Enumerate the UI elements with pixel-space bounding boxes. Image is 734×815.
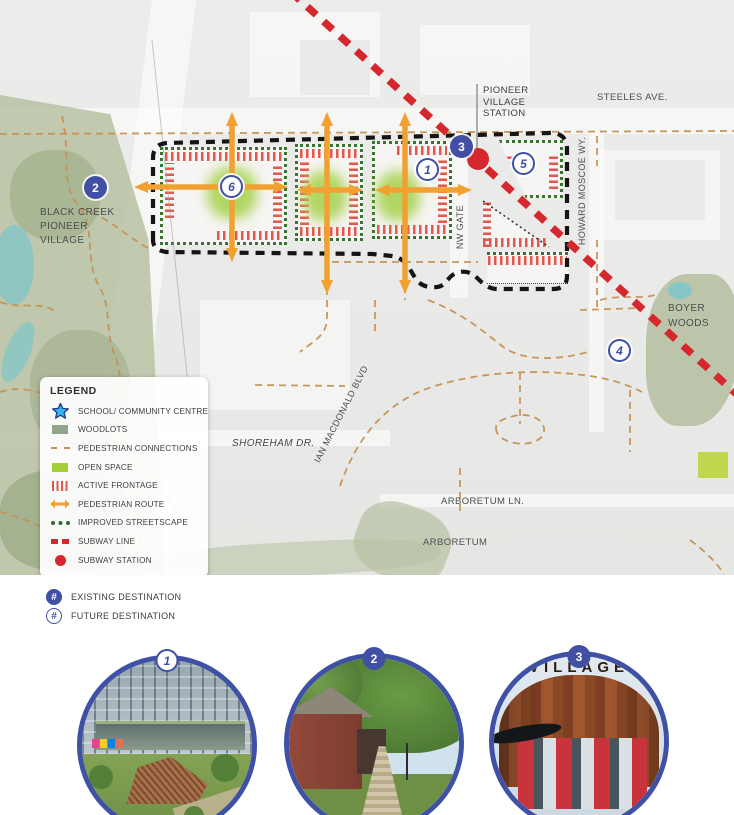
label-howard-moscoe: HOWARD MOSCOE WY. <box>577 136 587 246</box>
future-destination-label: FUTURE DESTINATION <box>71 611 175 621</box>
aerial-building <box>615 160 705 220</box>
map-marker-1: 1 <box>416 158 439 181</box>
striped-swatch <box>50 481 70 491</box>
active-frontage <box>438 157 447 223</box>
active-frontage <box>488 256 567 265</box>
photo-3-wrap: VILLAGE 3 <box>489 651 669 815</box>
label-nw-gate: NW GATE <box>455 197 465 257</box>
legend-title: LEGEND <box>50 385 198 397</box>
map-marker-6: 6 <box>220 175 243 198</box>
existing-destination-key: # EXISTING DESTINATION <box>46 589 181 605</box>
subway-dash-icon <box>50 539 70 544</box>
photo-2-lamp-post <box>406 743 408 780</box>
photo-1-image <box>77 655 257 815</box>
arboretum-road <box>380 494 734 507</box>
future-destination-icon: # <box>46 608 62 624</box>
active-frontage <box>217 231 282 240</box>
photo-2-cabin <box>289 714 362 789</box>
label-arboretum: ARBORETUM <box>423 537 487 548</box>
legend-label: OPEN SPACE <box>78 463 133 472</box>
label-pioneer-village-station: PIONEER VILLAGE STATION <box>483 85 529 120</box>
figure-canvas: PIONEER VILLAGE STATION STEELES AVE. BLA… <box>0 0 734 815</box>
photo-2-wrap: 2 <box>284 653 464 815</box>
label-boyer-woods: BOYER WOODS <box>668 301 709 331</box>
photo-3-badge: 3 <box>568 645 591 668</box>
subway-dot-icon <box>50 555 70 566</box>
map-marker-3: 3 <box>450 135 473 158</box>
map-marker-2: 2 <box>84 176 107 199</box>
open-space-swatch <box>50 463 70 472</box>
double-arrow-icon <box>50 499 70 509</box>
legend-item-woodlots: WOODLOTS <box>50 421 198 440</box>
boyer-pond <box>668 282 692 299</box>
legend-label: SCHOOL/ COMMUNITY CENTRE <box>78 407 208 416</box>
active-frontage <box>165 152 282 161</box>
legend-label: PEDESTRIAN CONNECTIONS <box>78 444 198 453</box>
active-frontage <box>483 238 549 247</box>
howard-moscoe-road <box>589 132 604 432</box>
map-marker-4: 4 <box>608 339 631 362</box>
aerial-building <box>200 300 350 410</box>
legend-item-pedestrian-route: PEDESTRIAN ROUTE <box>50 495 198 514</box>
existing-destination-label: EXISTING DESTINATION <box>71 592 181 602</box>
map-marker-5: 5 <box>512 152 535 175</box>
active-frontage <box>300 149 358 158</box>
legend-label: ACTIVE FRONTAGE <box>78 481 158 490</box>
photo-3-image: VILLAGE <box>489 651 669 815</box>
dotted-line-icon <box>50 521 70 525</box>
active-frontage <box>549 155 558 189</box>
legend-item-active-frontage: ACTIVE FRONTAGE <box>50 476 198 495</box>
active-frontage <box>273 163 282 229</box>
active-frontage <box>165 163 174 218</box>
legend-label: WOODLOTS <box>78 425 127 434</box>
boyer-woods-area <box>646 274 734 426</box>
legend-panel: LEGEND SCHOOL/ COMMUNITY CENTRE WOODLOTS… <box>40 377 208 575</box>
photo-1-badge: 1 <box>156 649 179 672</box>
dashed-line-icon <box>50 447 70 449</box>
photo-1-art-blocks <box>92 735 124 753</box>
photo-3-glass-panels <box>518 738 647 809</box>
active-frontage <box>349 160 358 225</box>
photo-1-wrap: 1 <box>77 655 257 815</box>
legend-label: IMPROVED STREETSCAPE <box>78 518 188 527</box>
label-arboretum-ln: ARBORETUM LN. <box>441 496 524 507</box>
active-frontage <box>397 146 447 155</box>
legend-item-improved-streetscape: IMPROVED STREETSCAPE <box>50 514 198 533</box>
woodlots-swatch <box>50 425 70 434</box>
aerial-building <box>300 40 370 95</box>
legend-item-subway-line: SUBWAY LINE <box>50 532 198 551</box>
existing-destination-icon: # <box>46 589 62 605</box>
active-frontage <box>377 225 447 234</box>
active-frontage <box>300 227 358 236</box>
open-space-blob <box>376 171 420 221</box>
open-space-blob <box>303 171 347 221</box>
legend-item-subway-station: SUBWAY STATION <box>50 551 198 570</box>
legend-label: SUBWAY STATION <box>78 556 152 565</box>
label-shoreham-dr: SHOREHAM DR. <box>232 438 315 449</box>
photo-1-tree <box>211 754 239 782</box>
future-destination-key: # FUTURE DESTINATION <box>46 608 175 624</box>
legend-item-open-space: OPEN SPACE <box>50 458 198 477</box>
legend-item-pedestrian-connections: PEDESTRIAN CONNECTIONS <box>50 439 198 458</box>
label-steeles-ave: STEELES AVE. <box>597 92 668 103</box>
legend-label: PEDESTRIAN ROUTE <box>78 500 164 509</box>
open-space-parcel <box>698 452 728 478</box>
legend-item-school: SCHOOL/ COMMUNITY CENTRE <box>50 402 198 421</box>
label-black-creek: BLACK CREEK PIONEER VILLAGE <box>40 206 114 248</box>
photo-2-badge: 2 <box>363 647 386 670</box>
star-icon <box>50 403 70 419</box>
photo-2-image <box>284 653 464 815</box>
legend-label: SUBWAY LINE <box>78 537 135 546</box>
block-strip <box>487 252 568 284</box>
plan-map: PIONEER VILLAGE STATION STEELES AVE. BLA… <box>0 0 734 575</box>
